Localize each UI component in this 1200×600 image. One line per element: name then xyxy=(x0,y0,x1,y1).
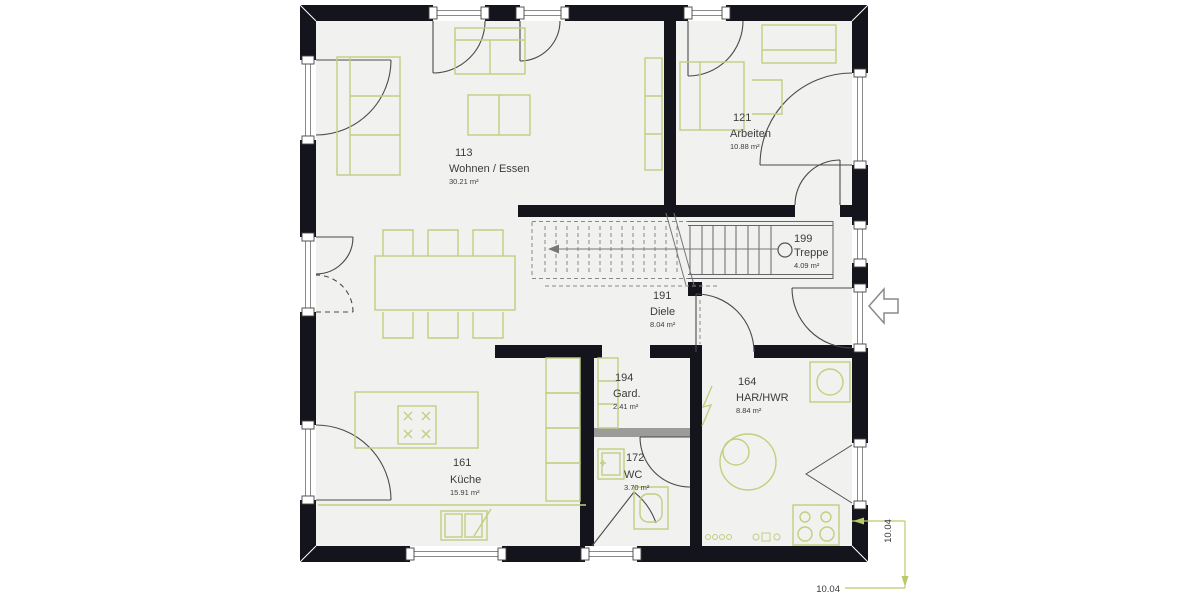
room-number: 199 xyxy=(794,233,812,245)
floorplan-svg: 113 Wohnen / Essen 30.21 m² 121 Arbeiten… xyxy=(0,0,1200,600)
room-area: 4.09 m² xyxy=(794,261,820,270)
room-number: 161 xyxy=(453,457,471,469)
room-area: 8.04 m² xyxy=(650,320,676,329)
room-number: 164 xyxy=(738,376,756,388)
room-name: Wohnen / Essen xyxy=(449,163,530,175)
room-number: 191 xyxy=(653,290,671,302)
room-name: Küche xyxy=(450,474,481,486)
lintel-beam xyxy=(594,428,690,437)
room-name: Treppe xyxy=(794,247,828,259)
room-area: 8.84 m² xyxy=(736,406,762,415)
room-area: 3.70 m² xyxy=(624,483,650,492)
room-name: HAR/HWR xyxy=(736,392,789,404)
room-name: WC xyxy=(624,469,642,481)
floorplan-page: 113 Wohnen / Essen 30.21 m² 121 Arbeiten… xyxy=(0,0,1200,600)
room-number: 172 xyxy=(626,452,644,464)
room-area: 10.88 m² xyxy=(730,142,760,151)
room-number: 121 xyxy=(733,112,751,124)
entrance-arrow-icon xyxy=(869,289,898,323)
room-area: 30.21 m² xyxy=(449,177,479,186)
dim-arrow-down xyxy=(902,576,909,587)
room-area: 15.91 m² xyxy=(450,488,480,497)
stair-newel-icon xyxy=(778,243,792,257)
room-number: 113 xyxy=(455,147,473,159)
room-name: Gard. xyxy=(613,388,641,400)
room-area: 2.41 m² xyxy=(613,402,639,411)
room-number: 194 xyxy=(615,372,633,384)
room-name: Arbeiten xyxy=(730,128,771,140)
dimension-width: 10.04 xyxy=(816,584,840,595)
room-name: Diele xyxy=(650,306,675,318)
dimension-depth: 10.04 xyxy=(883,519,894,543)
